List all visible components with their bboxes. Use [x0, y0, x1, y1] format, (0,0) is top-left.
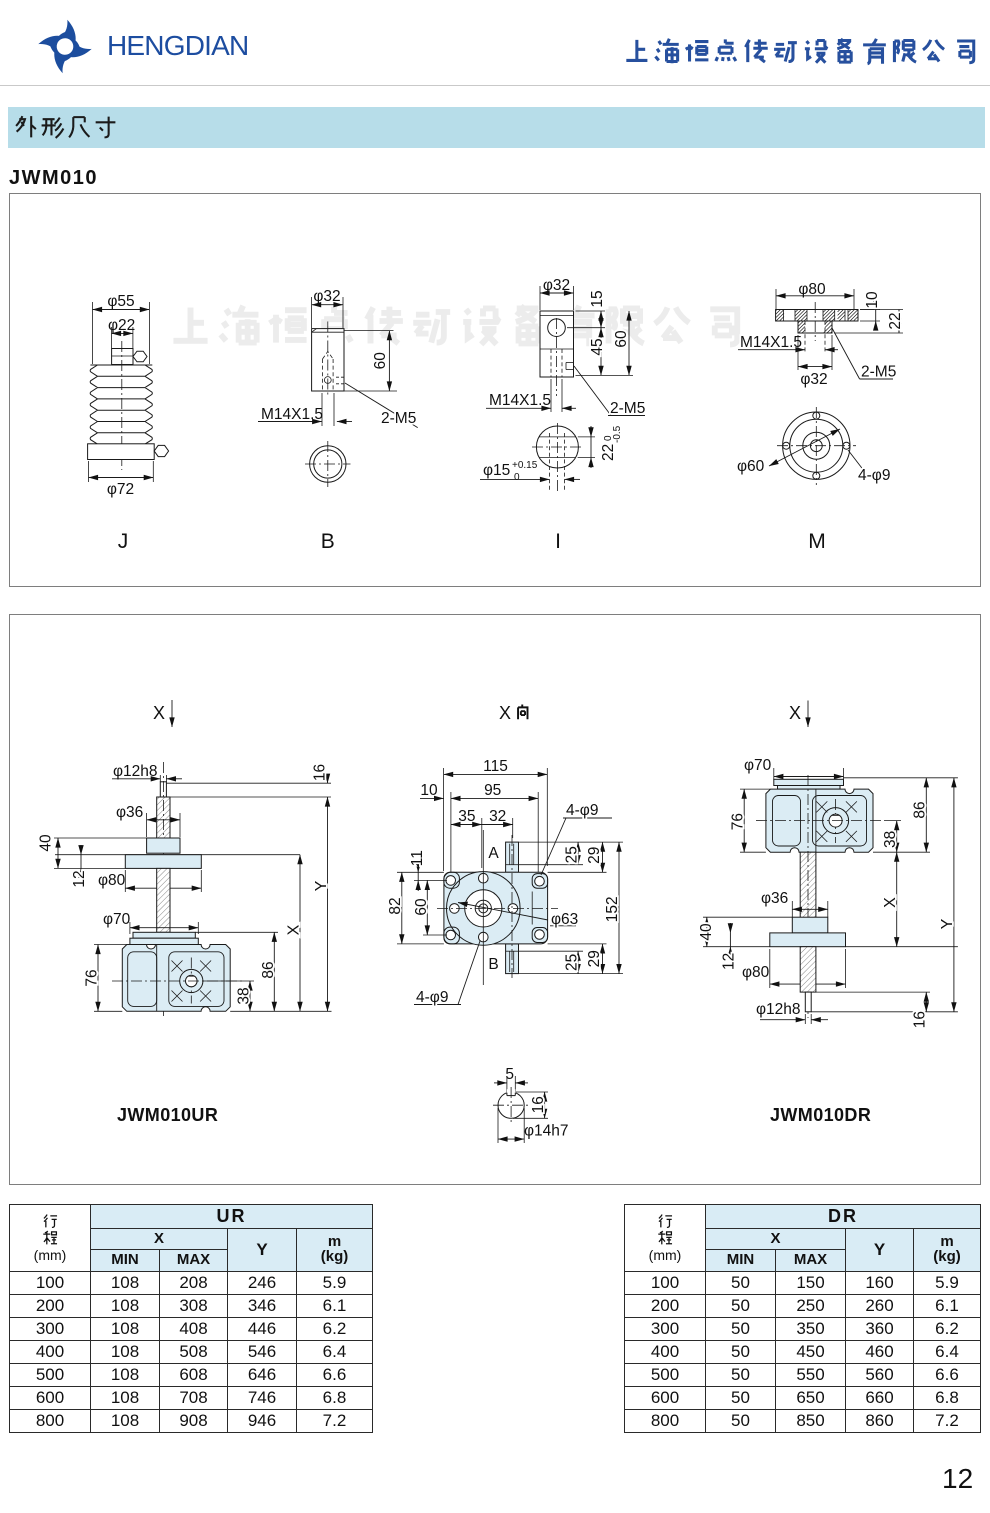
svg-text:4-φ9: 4-φ9 — [416, 989, 448, 1006]
svg-text:4-φ9: 4-φ9 — [858, 467, 890, 484]
svg-text:JWM010DR: JWM010DR — [770, 1105, 871, 1125]
svg-text:X: X — [286, 924, 303, 935]
svg-text:86: 86 — [912, 801, 929, 818]
svg-text:4-φ9: 4-φ9 — [566, 802, 598, 819]
svg-text:60: 60 — [372, 352, 389, 370]
svg-text:φ32: φ32 — [800, 371, 827, 388]
svg-text:φ72: φ72 — [107, 481, 134, 498]
svg-text:32: 32 — [489, 808, 506, 825]
svg-text:A: A — [488, 845, 499, 862]
svg-text:φ70: φ70 — [744, 757, 772, 774]
svg-text:I: I — [555, 530, 561, 553]
svg-text:60: 60 — [613, 330, 630, 348]
svg-text:40: 40 — [38, 834, 55, 852]
svg-text:0: 0 — [514, 472, 520, 483]
svg-text:152: 152 — [604, 896, 621, 922]
svg-text:10: 10 — [864, 291, 881, 309]
svg-text:25: 25 — [564, 954, 581, 971]
svg-text:38: 38 — [236, 987, 253, 1004]
svg-text:φ63: φ63 — [551, 911, 578, 928]
svg-text:11: 11 — [409, 850, 426, 866]
svg-text:φ80: φ80 — [742, 964, 770, 981]
svg-text:16: 16 — [912, 1011, 929, 1028]
svg-text:X: X — [789, 703, 801, 723]
svg-text:76: 76 — [730, 813, 747, 830]
svg-text:22: 22 — [887, 312, 904, 329]
svg-text:+0.15: +0.15 — [512, 460, 538, 471]
svg-text:45: 45 — [589, 338, 606, 355]
svg-text:J: J — [118, 530, 129, 553]
svg-text:φ80: φ80 — [98, 872, 126, 889]
svg-text:95: 95 — [484, 782, 501, 799]
svg-text:29: 29 — [586, 950, 603, 967]
svg-text:12: 12 — [71, 870, 88, 887]
svg-text:φ15: φ15 — [483, 462, 510, 479]
svg-text:X: X — [882, 897, 899, 908]
svg-text:JWM010UR: JWM010UR — [117, 1105, 218, 1125]
svg-text:φ12h8: φ12h8 — [113, 763, 158, 780]
svg-text:29: 29 — [586, 847, 603, 864]
svg-text:86: 86 — [260, 961, 277, 978]
svg-text:φ32: φ32 — [313, 288, 340, 305]
svg-text:φ14h7: φ14h7 — [524, 1123, 569, 1140]
svg-text:φ36: φ36 — [116, 804, 143, 821]
svg-text:10: 10 — [420, 782, 438, 799]
svg-text:38: 38 — [882, 831, 899, 848]
svg-text:76: 76 — [84, 969, 101, 986]
svg-text:φ55: φ55 — [107, 293, 134, 310]
svg-text:B: B — [488, 956, 498, 973]
svg-text:M14X1.5: M14X1.5 — [489, 392, 551, 409]
svg-text:φ70: φ70 — [103, 911, 131, 928]
svg-text:X: X — [499, 703, 511, 723]
svg-text:12: 12 — [721, 953, 738, 970]
svg-text:φ32: φ32 — [543, 277, 570, 294]
svg-text:Y: Y — [313, 880, 330, 891]
svg-text:M: M — [808, 530, 826, 553]
svg-text:16: 16 — [312, 764, 329, 781]
svg-text:2-M5: 2-M5 — [381, 410, 416, 427]
svg-text:115: 115 — [483, 758, 508, 775]
svg-text:X: X — [153, 703, 165, 723]
svg-text:B: B — [321, 530, 335, 553]
svg-text:35: 35 — [458, 808, 475, 825]
svg-text:M14X1.5: M14X1.5 — [261, 406, 323, 423]
svg-text:Y: Y — [939, 918, 956, 929]
svg-text:φ36: φ36 — [761, 890, 788, 907]
svg-text:16: 16 — [530, 1096, 547, 1113]
svg-text:40: 40 — [698, 923, 715, 941]
svg-text:φ60: φ60 — [737, 458, 765, 475]
svg-text:25: 25 — [564, 846, 581, 863]
svg-text:-0.5: -0.5 — [612, 425, 623, 443]
svg-text:φ12h8: φ12h8 — [756, 1001, 801, 1018]
svg-text:2-M5: 2-M5 — [610, 400, 645, 417]
svg-text:22: 22 — [600, 444, 617, 461]
svg-text:2-M5: 2-M5 — [861, 364, 896, 381]
svg-text:M14X1.5: M14X1.5 — [740, 334, 802, 351]
svg-text:15: 15 — [589, 290, 606, 307]
svg-text:φ22: φ22 — [108, 317, 135, 334]
svg-text:60: 60 — [413, 898, 430, 916]
svg-text:82: 82 — [387, 897, 404, 914]
